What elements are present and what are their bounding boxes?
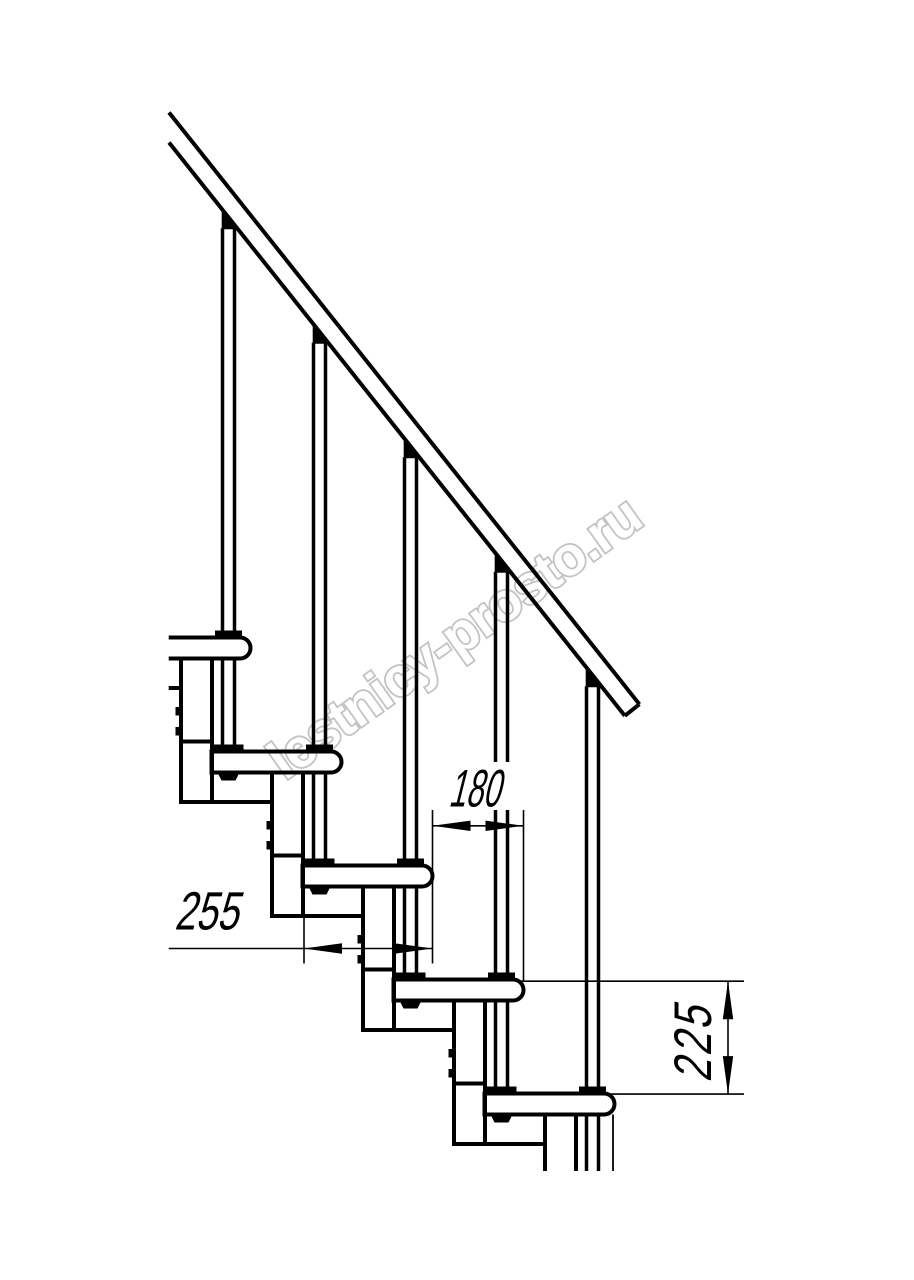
svg-text:255: 255 xyxy=(171,882,250,942)
svg-text:225: 225 xyxy=(664,992,723,1085)
